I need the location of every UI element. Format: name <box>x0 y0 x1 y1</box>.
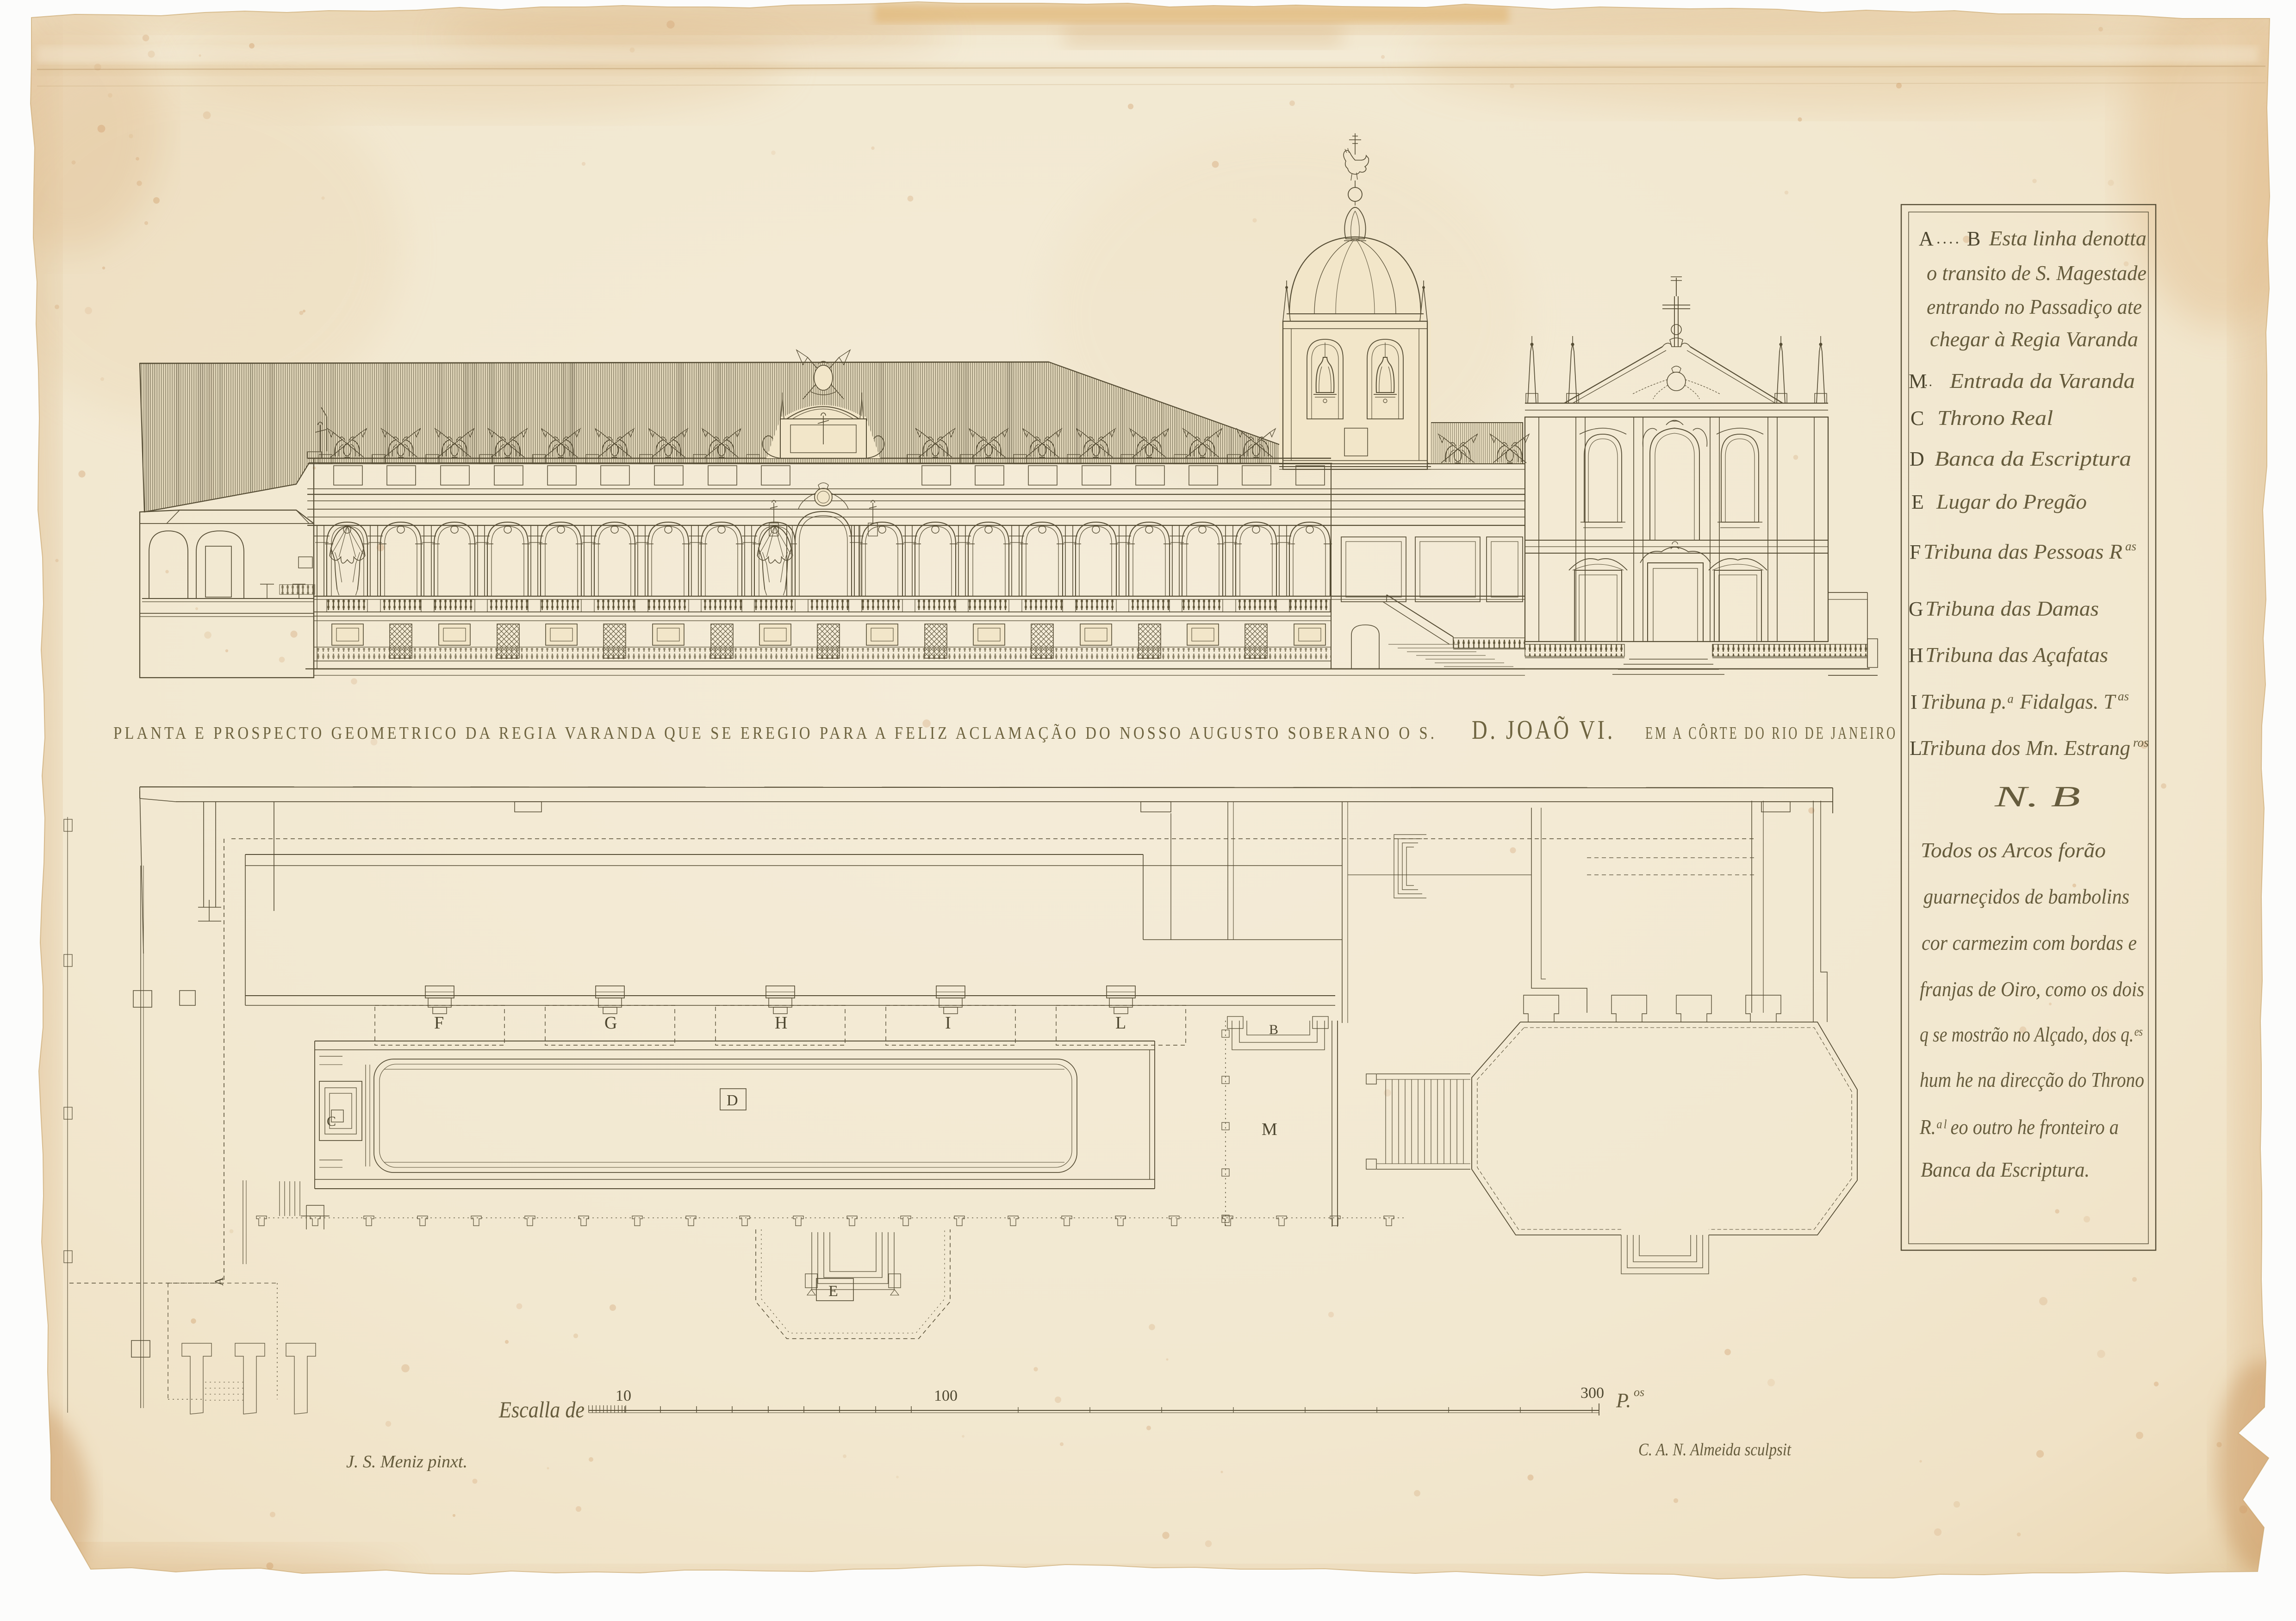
svg-text:D: D <box>727 1092 738 1109</box>
svg-text:Tribuna p.ᵃ Fidalgas. T: Tribuna p.ᵃ Fidalgas. T <box>1921 690 2116 713</box>
svg-text:EM A CÔRTE DO RIO DE JANEIRO: EM A CÔRTE DO RIO DE JANEIRO <box>1645 723 1898 743</box>
svg-text:F: F <box>434 1013 444 1033</box>
svg-text:G: G <box>604 1013 617 1033</box>
svg-text:Tribuna dos Mn. Estrang: Tribuna dos Mn. Estrang <box>1920 736 2130 760</box>
svg-text:G: G <box>1909 598 1923 620</box>
svg-text:guarneçidos de bambolins: guarneçidos de bambolins <box>1923 885 2129 908</box>
svg-text:Todos os Arcos forão: Todos os Arcos forão <box>1921 838 2106 862</box>
svg-text:Lugar do Pregão: Lugar do Pregão <box>1936 490 2087 513</box>
svg-text:entrando no Passadiço ate: entrando no Passadiço ate <box>1927 295 2142 318</box>
svg-text:M: M <box>1909 370 1927 393</box>
svg-text:C: C <box>1910 407 1924 430</box>
svg-text:A: A <box>1919 227 1934 250</box>
svg-text:L: L <box>1115 1013 1126 1033</box>
svg-text:chegar à Regia Varanda: chegar à Regia Varanda <box>1930 327 2138 351</box>
svg-text:J. S. Meniz pinxt.: J. S. Meniz pinxt. <box>346 1452 467 1471</box>
svg-text:D. JOAÕ VI.: D. JOAÕ VI. <box>1472 715 1615 745</box>
svg-text:C. A. N. Almeida sculpsit: C. A. N. Almeida sculpsit <box>1638 1440 1792 1459</box>
svg-text:I: I <box>1910 691 1917 713</box>
svg-text:300: 300 <box>1580 1384 1604 1402</box>
svg-text:I: I <box>945 1013 951 1033</box>
svg-text:E: E <box>828 1283 838 1300</box>
svg-text:Banca da Escriptura.: Banca da Escriptura. <box>1921 1158 2090 1181</box>
svg-text:F: F <box>1910 541 1921 563</box>
svg-text:Entrada da Varanda: Entrada da Varanda <box>1949 369 2135 393</box>
svg-text:H: H <box>1909 644 1923 667</box>
svg-text:E: E <box>1911 491 1924 513</box>
svg-text:as: as <box>2118 689 2129 703</box>
svg-text:....: .... <box>1936 230 1961 247</box>
svg-text:Tribuna das Damas: Tribuna das Damas <box>1925 597 2099 620</box>
svg-text:cor carmezim com bordas e: cor carmezim com bordas e <box>1922 931 2137 954</box>
svg-text:ros: ros <box>2133 736 2149 749</box>
svg-text:R.ᵃˡ eo outro he fronteiro a: R.ᵃˡ eo outro he fronteiro a <box>1919 1115 2119 1139</box>
svg-text:Banca da Escriptura: Banca da Escriptura <box>1935 447 2131 470</box>
svg-text:10: 10 <box>616 1387 631 1404</box>
svg-text:os: os <box>1634 1385 1644 1399</box>
svg-text:P.: P. <box>1616 1389 1631 1412</box>
svg-text:D: D <box>1910 448 1924 470</box>
svg-text:o transito de S. Magestade: o transito de S. Magestade <box>1927 261 2147 285</box>
svg-text:Tribuna das Açafatas: Tribuna das Açafatas <box>1925 643 2108 667</box>
svg-text:A: A <box>212 1277 226 1286</box>
svg-text:H: H <box>775 1013 787 1033</box>
svg-text:N. B: N. B <box>1994 780 2080 813</box>
svg-text:franjas de Oiro, como os dois: franjas de Oiro, como os dois <box>1920 977 2144 1001</box>
svg-text:hum he na direcção do Throno: hum he na direcção do Throno <box>1920 1068 2144 1091</box>
svg-text:100: 100 <box>934 1387 958 1404</box>
svg-text:PLANTA E PROSPECTO GEOMETRICO: PLANTA E PROSPECTO GEOMETRICO DA REGIA V… <box>113 723 1437 743</box>
svg-text:C: C <box>327 1114 336 1129</box>
svg-text:q se mostrão no Alçado, dos q.: q se mostrão no Alçado, dos q.ᵉˢ <box>1920 1022 2143 1046</box>
svg-text:Throno Real: Throno Real <box>1937 406 2053 430</box>
svg-text:B: B <box>1269 1022 1278 1037</box>
svg-text:B: B <box>1967 227 1980 250</box>
svg-text:Esta linha denotta: Esta linha denotta <box>1989 226 2147 250</box>
svg-text:Tribuna das Pessoas R: Tribuna das Pessoas R <box>1923 540 2122 563</box>
svg-text:Escalla de: Escalla de <box>498 1397 585 1422</box>
svg-text:M: M <box>1262 1120 1277 1139</box>
svg-text:as: as <box>2125 539 2136 553</box>
